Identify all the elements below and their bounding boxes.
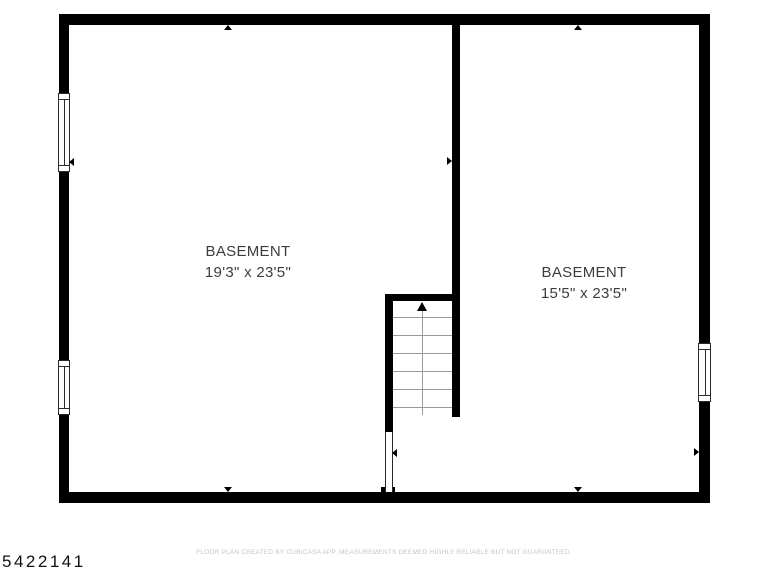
stair-center-line	[422, 311, 423, 415]
room-label-left: BASEMENT 19'3" x 23'5"	[148, 241, 348, 283]
window-right	[698, 343, 711, 402]
staircase	[393, 301, 452, 417]
window-pane-line	[64, 99, 65, 166]
room-name: BASEMENT	[148, 241, 348, 262]
measurement-marker-icon	[392, 449, 397, 457]
stair-wall-left	[385, 294, 393, 432]
measurement-marker-icon	[447, 157, 452, 165]
measurement-marker-icon	[224, 25, 232, 30]
measurement-marker-icon	[694, 448, 699, 456]
window-pane-line	[64, 366, 65, 409]
measurement-marker-icon	[224, 487, 232, 492]
footer-disclaimer: FLOOR PLAN CREATED BY CUBICASA APP. MEAS…	[0, 549, 768, 556]
wall-divider	[452, 25, 460, 417]
room-dimensions: 15'5" x 23'5"	[484, 283, 684, 304]
wall-opening	[385, 432, 393, 492]
measurement-marker-icon	[574, 487, 582, 492]
stair-wall-top	[385, 294, 460, 301]
stairs-up-arrow-icon	[417, 302, 427, 311]
measurement-marker-icon	[574, 25, 582, 30]
window-lower-left	[58, 360, 70, 415]
wall-top	[59, 14, 710, 25]
room-dimensions: 19'3" x 23'5"	[148, 262, 348, 283]
wall-left	[59, 14, 69, 503]
wall-right	[699, 14, 710, 503]
measurement-marker-icon	[69, 158, 74, 166]
floor-plan-page: BASEMENT 19'3" x 23'5" BASEMENT 15'5" x …	[0, 0, 768, 576]
window-pane-line	[705, 349, 706, 396]
room-name: BASEMENT	[484, 262, 684, 283]
room-label-right: BASEMENT 15'5" x 23'5"	[484, 262, 684, 304]
